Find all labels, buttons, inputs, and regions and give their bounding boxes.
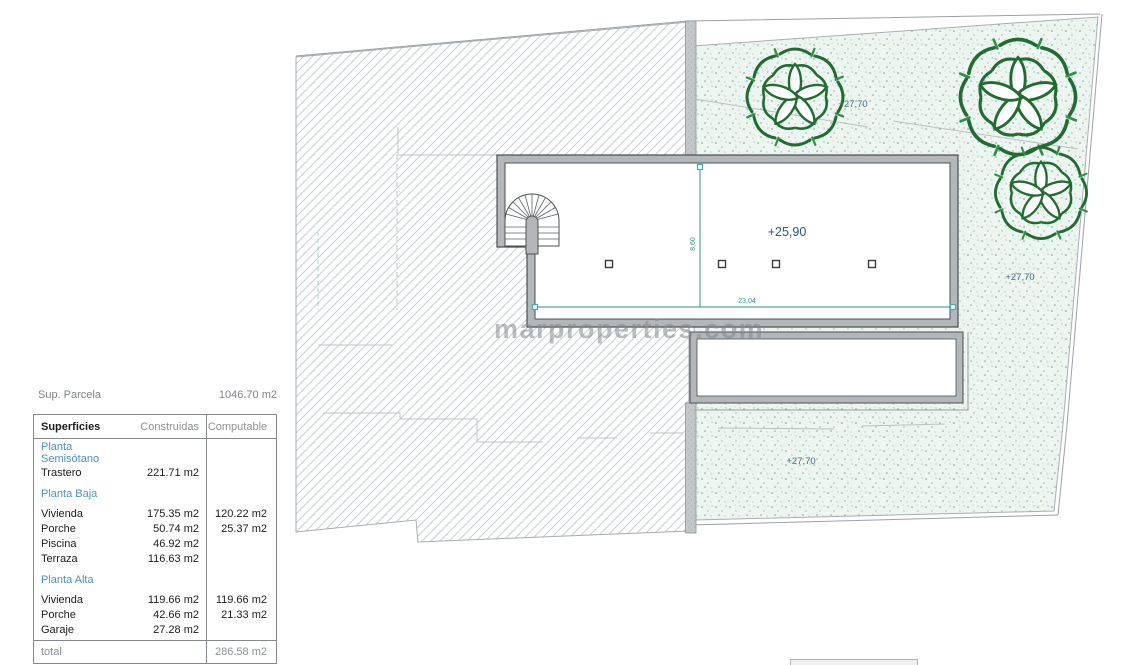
table-row: Vivienda 175.35 m2 120.22 m2 bbox=[34, 506, 276, 521]
row-label: Porche bbox=[34, 609, 122, 621]
cutoff-element bbox=[790, 659, 918, 665]
row-construidas: 116.63 m2 bbox=[122, 553, 199, 565]
section-title: Planta Alta bbox=[34, 572, 276, 588]
row-construidas: 27.28 m2 bbox=[122, 624, 199, 636]
row-computable: 25.37 m2 bbox=[199, 523, 276, 535]
table-total-row: total 286.58 m2 bbox=[34, 640, 276, 663]
table-row: Porche 50.74 m2 25.37 m2 bbox=[34, 521, 276, 536]
row-construidas: 221.71 m2 bbox=[122, 467, 199, 479]
table-row: Vivienda 119.66 m2 119.66 m2 bbox=[34, 592, 276, 607]
row-computable: 119.66 m2 bbox=[199, 594, 276, 606]
building-outline bbox=[497, 155, 958, 327]
row-construidas: 46.92 m2 bbox=[122, 538, 199, 550]
areas-table: Superficies Construidas Computable Plant… bbox=[33, 414, 277, 664]
row-construidas: 42.66 m2 bbox=[122, 609, 199, 621]
row-computable: 120.22 m2 bbox=[199, 508, 276, 520]
parcel-summary-label: Sup. Parcela bbox=[38, 389, 101, 401]
spiral-staircase bbox=[505, 194, 559, 254]
table-row: Porche 42.66 m2 21.33 m2 bbox=[34, 607, 276, 622]
section-title: Planta Semisótano bbox=[34, 445, 276, 461]
level-label-main: +25,90 bbox=[768, 225, 807, 239]
row-construidas: 119.66 m2 bbox=[122, 594, 199, 606]
table-header-row: Superficies Construidas Computable bbox=[34, 415, 276, 439]
row-label: Vivienda bbox=[34, 508, 122, 520]
section-title: Planta Baja bbox=[34, 486, 276, 502]
watermark-text: marproperties.com bbox=[494, 314, 764, 345]
row-label: Trastero bbox=[34, 467, 122, 479]
row-label: Piscina bbox=[34, 538, 122, 550]
section-title-label: Planta Semisótano bbox=[34, 441, 122, 465]
row-label: Vivienda bbox=[34, 594, 122, 606]
level-label-bottom: +27,70 bbox=[786, 456, 815, 467]
table-row: Terraza 116.63 m2 bbox=[34, 551, 276, 566]
row-label: Porche bbox=[34, 523, 122, 535]
row-construidas: 175.35 m2 bbox=[122, 508, 199, 520]
total-label: total bbox=[34, 646, 122, 658]
header-construidas: Construidas bbox=[122, 421, 199, 433]
parcel-summary-value: 1046.70 m2 bbox=[219, 389, 277, 401]
parcel-summary-row: Sup. Parcela 1046.70 m2 bbox=[38, 389, 277, 401]
table-column-divider bbox=[206, 415, 207, 663]
section-title-label: Planta Baja bbox=[34, 488, 122, 500]
header-computable: Computable bbox=[199, 421, 276, 433]
dimension-label-horizontal: 23,04 bbox=[738, 298, 756, 305]
header-superficies: Superficies bbox=[34, 421, 122, 433]
row-computable: 21.33 m2 bbox=[199, 609, 276, 621]
level-label-top: +27,70 bbox=[838, 99, 867, 110]
row-label: Garaje bbox=[34, 624, 122, 636]
dimension-label-vertical: 8,60 bbox=[690, 237, 697, 251]
table-row: Piscina 46.92 m2 bbox=[34, 536, 276, 551]
table-row: Garaje 27.28 m2 bbox=[34, 622, 276, 637]
row-label: Terraza bbox=[34, 553, 122, 565]
table-row: Trastero 221.71 m2 bbox=[34, 465, 276, 480]
total-value: 286.58 m2 bbox=[199, 646, 276, 658]
section-title-label: Planta Alta bbox=[34, 574, 122, 586]
row-construidas: 50.74 m2 bbox=[122, 523, 199, 535]
site-plan-page: 8,60 23,04 +25,90 +27,70 +27,70 +27,70 m… bbox=[0, 0, 1130, 665]
level-label-right: +27,70 bbox=[1005, 272, 1034, 283]
